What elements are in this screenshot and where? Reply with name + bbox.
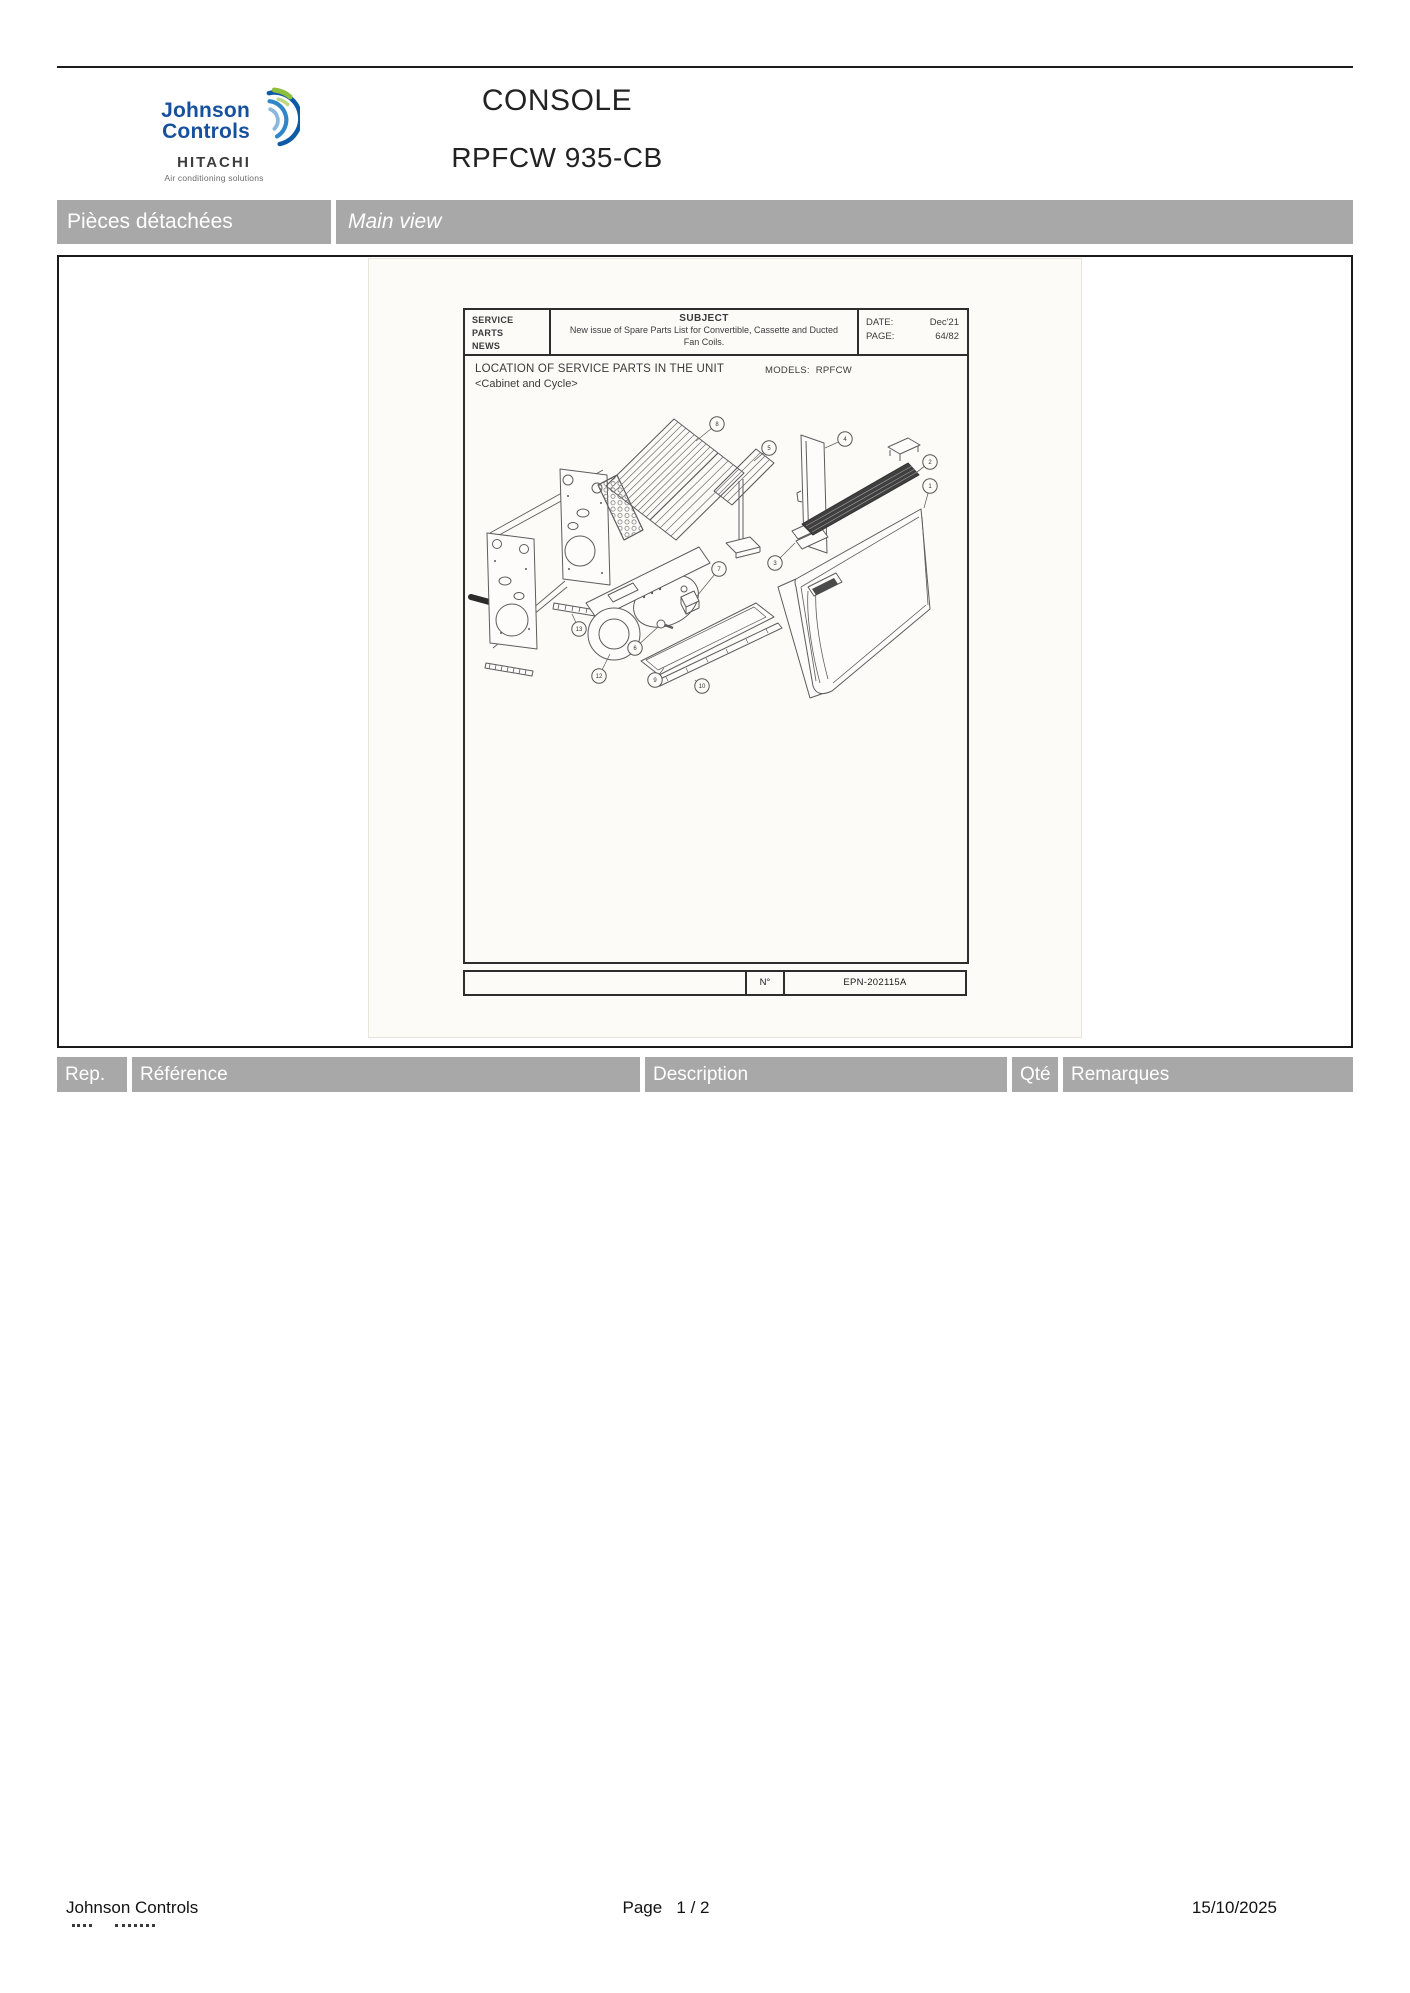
footer-page-label: Page [623, 1898, 663, 1917]
date-value: Dec'21 [930, 317, 959, 328]
spn-line-news: NEWS [472, 340, 549, 353]
footer-page-indicator: Page 1 / 2 [57, 1898, 1275, 1918]
subject-label: SUBJECT [551, 313, 857, 324]
spn-date-cell: DATE: Dec'21 PAGE: 64/82 [857, 310, 967, 354]
page-label: PAGE: [866, 331, 894, 342]
svg-text:13: 13 [576, 627, 583, 633]
location-title: LOCATION OF SERVICE PARTS IN THE UNIT [475, 363, 724, 375]
doc-number-value: EPN-202115A [783, 970, 967, 996]
spn-line-parts: PARTS [472, 327, 549, 340]
johnson-controls-wordmark: Johnson Controls [161, 100, 250, 142]
spn-footer-empty-cell [463, 970, 747, 996]
models-value: RPFCW [816, 365, 852, 376]
column-header-description: Description [645, 1057, 1007, 1092]
date-label: DATE: [866, 317, 893, 328]
column-header-remarks: Remarques [1063, 1057, 1353, 1092]
section-bar-parts-label: Pièces détachées [57, 200, 331, 244]
spn-title-cell: SERVICE PARTS NEWS [465, 310, 551, 354]
page-value: 64/82 [935, 331, 959, 342]
column-header-qty: Qté [1012, 1057, 1058, 1092]
hitachi-wordmark: HITACHI [134, 154, 294, 171]
column-header-rep: Rep. [57, 1057, 127, 1092]
hitachi-tagline: Air conditioning solutions [134, 173, 294, 183]
doc-number-label: N° [745, 970, 785, 996]
column-header-reference: Référence [132, 1057, 640, 1092]
exploded-diagram: 854213761312910 [456, 391, 976, 726]
footer-page-value: 1 / 2 [676, 1898, 709, 1917]
diagram-parts [471, 419, 930, 698]
clipped-text-fragment [72, 1924, 92, 1927]
location-subtitle: <Cabinet and Cycle> [475, 378, 578, 390]
side-panel-left [487, 533, 537, 649]
document-page: CONSOLE RPFCW 935-CB Johnson Controls HI… [0, 0, 1410, 1993]
logo-line1: Johnson [161, 100, 250, 121]
spn-masthead: SERVICE PARTS NEWS SUBJECT New issue of … [463, 308, 969, 356]
models-label: MODELS: [765, 365, 810, 376]
bottom-strip [485, 663, 533, 676]
clipped-text-fragment [115, 1924, 155, 1927]
swirl-logo-icon [254, 86, 300, 148]
support-bracket [726, 479, 760, 558]
logo-line2: Controls [161, 121, 250, 142]
svg-text:10: 10 [699, 684, 706, 690]
top-cap [888, 438, 920, 461]
section-bar-view-label: Main view [336, 200, 1353, 244]
spn-footer-row: N° EPN-202115A [463, 970, 969, 996]
parts-table-header: Rep. Référence Description Qté Remarques [57, 1057, 1353, 1092]
top-rule [57, 66, 1353, 68]
svg-text:12: 12 [596, 674, 603, 680]
spn-line-service: SERVICE [472, 314, 549, 327]
spn-subject-cell: SUBJECT New issue of Spare Parts List fo… [551, 310, 857, 354]
subject-text: New issue of Spare Parts List for Conver… [551, 324, 857, 348]
footer-company: Johnson Controls [66, 1898, 198, 1918]
footer-date: 15/10/2025 [1192, 1898, 1277, 1918]
embedded-scan: SERVICE PARTS NEWS SUBJECT New issue of … [368, 258, 1082, 1038]
models-line: MODELS: RPFCW [765, 365, 852, 376]
